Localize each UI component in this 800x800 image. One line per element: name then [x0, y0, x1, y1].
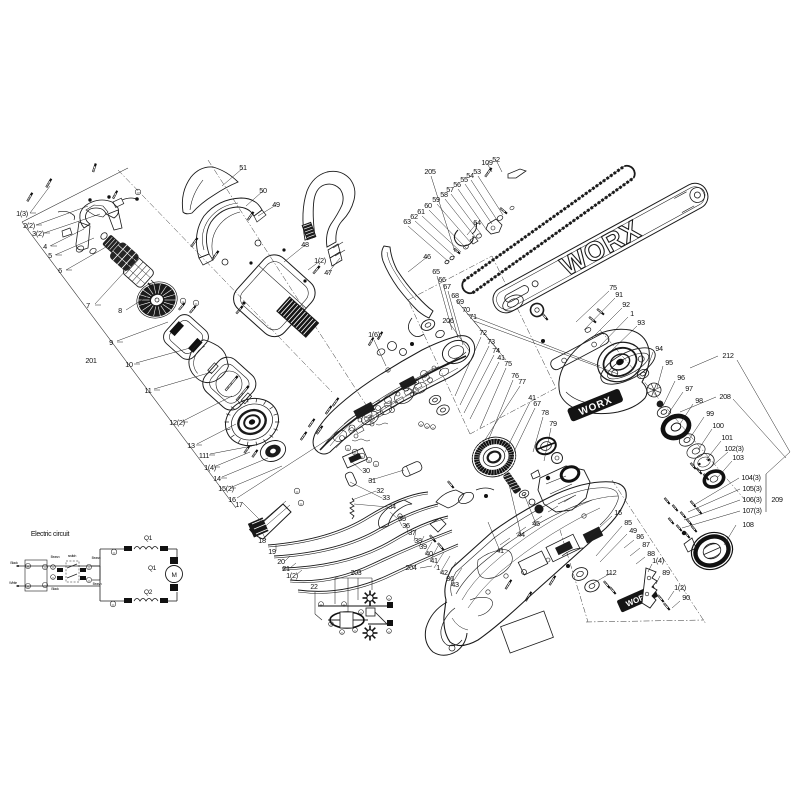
- svg-text:96: 96: [677, 373, 685, 382]
- svg-text:59: 59: [432, 195, 440, 204]
- svg-text:11: 11: [145, 386, 152, 395]
- svg-text:17: 17: [235, 500, 243, 509]
- svg-text:52: 52: [492, 155, 500, 164]
- svg-text:Q1: Q1: [144, 535, 153, 542]
- svg-text:6: 6: [58, 266, 62, 275]
- svg-text:41: 41: [496, 546, 504, 555]
- svg-text:22: 22: [310, 584, 318, 591]
- svg-text:1(2): 1(2): [286, 571, 298, 580]
- svg-text:75: 75: [504, 359, 512, 368]
- svg-text:102(3): 102(3): [724, 444, 743, 453]
- svg-text:1(4): 1(4): [652, 556, 664, 565]
- svg-text:99: 99: [706, 409, 714, 418]
- svg-text:Black: Black: [10, 561, 18, 565]
- svg-text:101: 101: [721, 433, 733, 442]
- svg-text:94: 94: [655, 344, 663, 353]
- svg-text:1(2): 1(2): [314, 256, 326, 265]
- svg-text:Brown: Brown: [51, 555, 60, 559]
- svg-text:90: 90: [682, 593, 690, 602]
- svg-text:206: 206: [442, 316, 454, 325]
- svg-text:White: White: [9, 581, 17, 585]
- svg-text:93: 93: [637, 318, 645, 327]
- svg-text:30: 30: [362, 466, 370, 475]
- svg-text:Brown: Brown: [92, 556, 101, 560]
- svg-text:103: 103: [732, 453, 744, 462]
- svg-text:3(2): 3(2): [32, 229, 44, 238]
- svg-text:Q1: Q1: [148, 565, 157, 572]
- svg-text:switch: switch: [68, 554, 76, 558]
- svg-text:14: 14: [213, 474, 221, 483]
- svg-text:48: 48: [301, 240, 309, 249]
- svg-text:12(2): 12(2): [169, 418, 185, 427]
- svg-text:16: 16: [614, 508, 622, 517]
- svg-text:91: 91: [615, 290, 623, 299]
- svg-text:107(3): 107(3): [742, 506, 761, 515]
- svg-text:51: 51: [239, 163, 247, 172]
- svg-text:60: 60: [424, 201, 432, 210]
- svg-text:53: 53: [473, 167, 481, 176]
- svg-text:9: 9: [109, 338, 113, 347]
- svg-text:45: 45: [532, 519, 540, 528]
- svg-text:46: 46: [423, 252, 431, 261]
- svg-text:111: 111: [199, 451, 209, 460]
- svg-text:89: 89: [662, 568, 670, 577]
- svg-text:201: 201: [85, 356, 97, 365]
- svg-text:92: 92: [622, 300, 630, 309]
- svg-text:204: 204: [405, 563, 417, 572]
- svg-text:71: 71: [469, 312, 477, 321]
- svg-text:1(3): 1(3): [16, 209, 28, 218]
- svg-text:13: 13: [187, 441, 195, 450]
- svg-text:109: 109: [481, 158, 493, 167]
- svg-text:203: 203: [351, 570, 362, 577]
- svg-text:49: 49: [272, 200, 280, 209]
- svg-text:73: 73: [487, 337, 495, 346]
- svg-text:209: 209: [771, 495, 783, 504]
- svg-text:1(6): 1(6): [368, 330, 380, 339]
- svg-text:33: 33: [382, 493, 390, 502]
- svg-text:34: 34: [388, 502, 396, 511]
- svg-text:98: 98: [695, 396, 703, 405]
- svg-text:5: 5: [48, 251, 52, 260]
- svg-text:112: 112: [606, 568, 617, 577]
- svg-text:Q2: Q2: [144, 589, 153, 596]
- svg-text:106(3): 106(3): [742, 495, 761, 504]
- svg-text:M: M: [171, 572, 176, 579]
- svg-text:97: 97: [685, 384, 693, 393]
- svg-text:50: 50: [259, 186, 267, 195]
- svg-text:87: 87: [642, 540, 650, 549]
- svg-text:77: 77: [518, 377, 526, 386]
- svg-text:43: 43: [451, 580, 459, 589]
- svg-text:Electric circuit: Electric circuit: [31, 531, 70, 538]
- svg-text:1(2): 1(2): [674, 583, 686, 592]
- svg-text:79: 79: [549, 419, 557, 428]
- svg-text:64: 64: [473, 218, 481, 227]
- svg-text:67: 67: [443, 282, 451, 291]
- svg-text:105(3): 105(3): [742, 484, 761, 493]
- svg-text:108: 108: [742, 520, 754, 529]
- svg-text:4: 4: [43, 242, 47, 251]
- svg-text:95: 95: [665, 358, 673, 367]
- svg-text:104(3): 104(3): [741, 473, 760, 482]
- svg-text:72: 72: [479, 328, 487, 337]
- svg-text:15(2): 15(2): [218, 484, 234, 493]
- svg-text:8: 8: [118, 306, 122, 315]
- svg-text:78: 78: [541, 408, 549, 417]
- svg-text:1: 1: [630, 309, 634, 318]
- svg-text:208: 208: [719, 392, 731, 401]
- svg-text:7: 7: [86, 301, 90, 310]
- svg-text:Black: Black: [51, 587, 59, 591]
- svg-text:19: 19: [268, 547, 276, 556]
- svg-text:10: 10: [125, 360, 133, 369]
- svg-text:100: 100: [712, 421, 724, 430]
- svg-text:212: 212: [722, 351, 734, 360]
- svg-text:205: 205: [424, 167, 436, 176]
- svg-text:67: 67: [533, 399, 541, 408]
- svg-text:1(4): 1(4): [204, 463, 216, 472]
